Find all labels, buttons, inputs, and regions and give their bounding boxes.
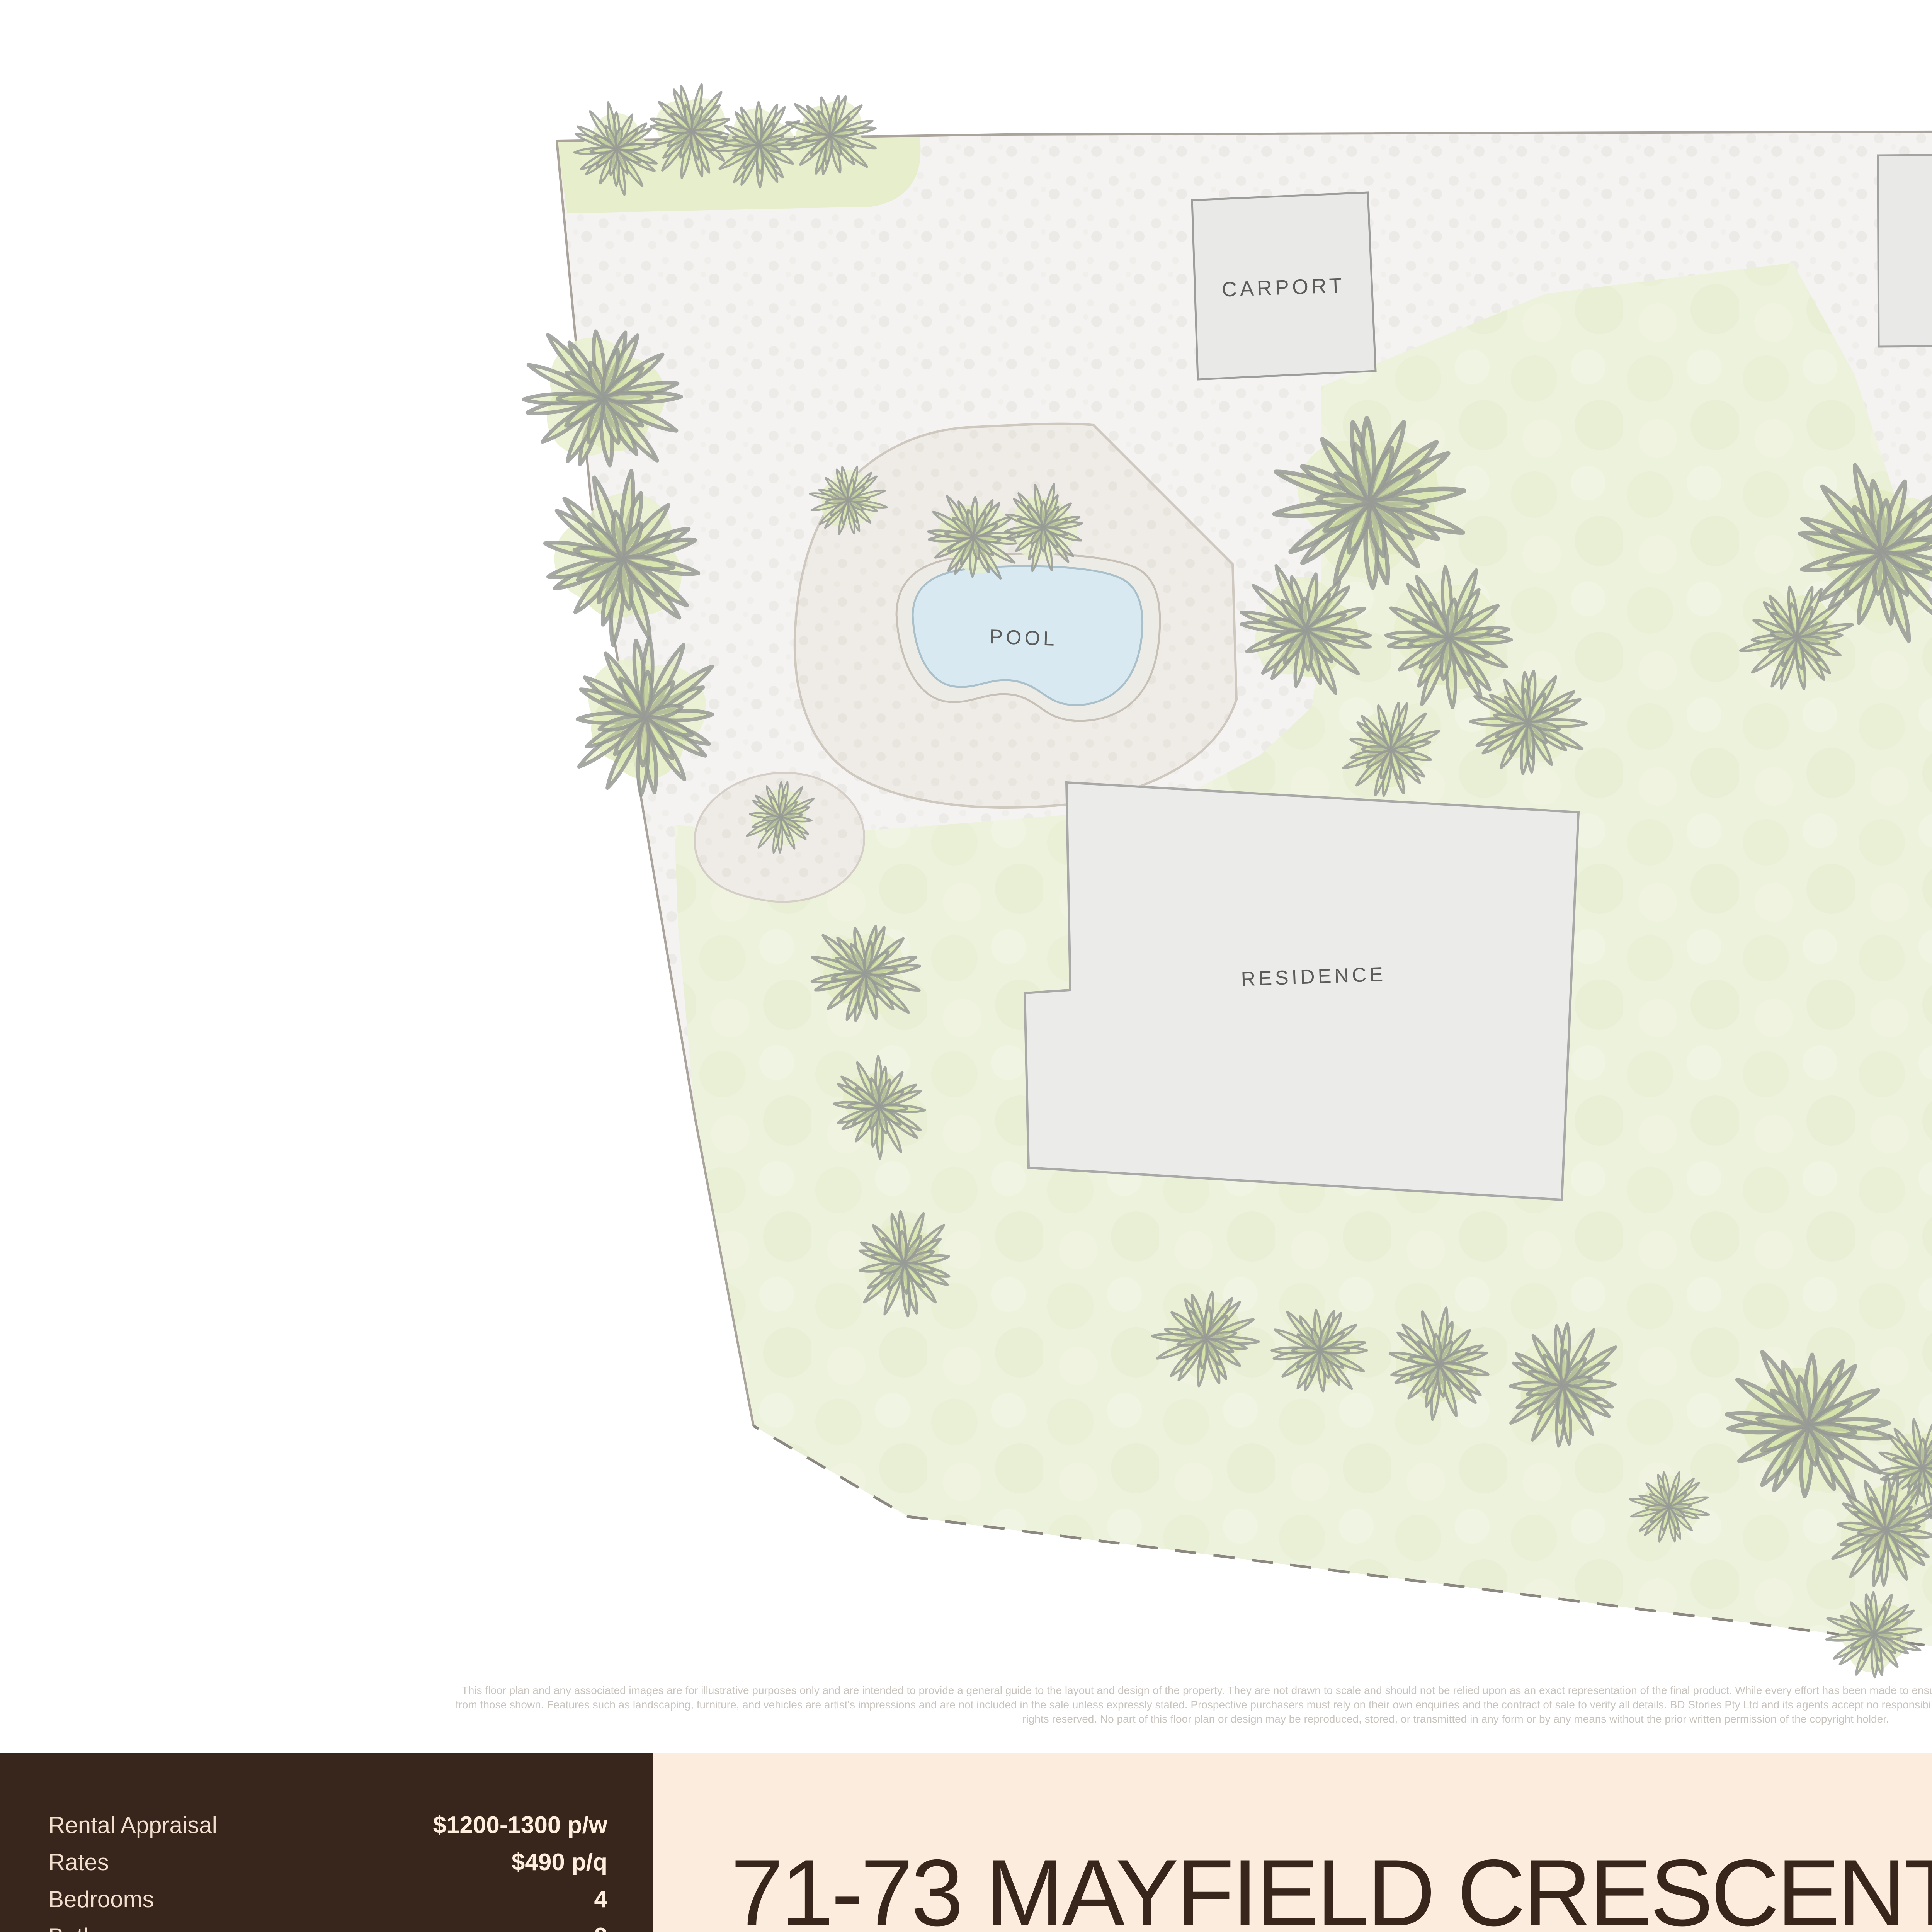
stat-row-rates: Rates $490 p/q (48, 1849, 607, 1886)
stat-value: $1200-1300 p/w (433, 1811, 607, 1839)
stat-row-rental: Rental Appraisal $1200-1300 p/w (48, 1811, 607, 1849)
stat-row-bedrooms: Bedrooms 4 (48, 1886, 607, 1923)
stats-panel: Rental Appraisal $1200-1300 p/w Rates $4… (0, 1753, 653, 1932)
page: CARPORT SHED 3x3m RESIDENCE POOL This fl… (0, 0, 1932, 1932)
disclaimer: This floor plan and any associated image… (0, 1683, 1932, 1726)
stat-label: Rental Appraisal (48, 1812, 217, 1838)
shed-building (1878, 154, 1932, 347)
address-line1: 71-73 MAYFIELD CRESCENT (731, 1845, 1932, 1932)
stat-label: Bedrooms (48, 1886, 154, 1913)
stat-row-bathrooms: Bathrooms 2 (48, 1923, 607, 1932)
site-plan: CARPORT SHED 3x3m RESIDENCE POOL (0, 0, 1932, 1753)
residence-building (1025, 782, 1578, 1200)
carport-label: CARPORT (1221, 274, 1345, 301)
footer-bar: Rental Appraisal $1200-1300 p/w Rates $4… (0, 1753, 1932, 1932)
stat-value: 4 (594, 1886, 607, 1913)
pool-label: POOL (989, 626, 1058, 650)
disclaimer-line2: from those shown. Features such as lands… (0, 1697, 1932, 1712)
disclaimer-line1: This floor plan and any associated image… (0, 1683, 1932, 1697)
disclaimer-line3: rights reserved. No part of this floor p… (0, 1712, 1932, 1726)
stat-value: $490 p/q (512, 1849, 607, 1876)
stat-label: Bathrooms (48, 1923, 160, 1932)
stat-value: 2 (594, 1923, 607, 1932)
stat-label: Rates (48, 1849, 109, 1876)
